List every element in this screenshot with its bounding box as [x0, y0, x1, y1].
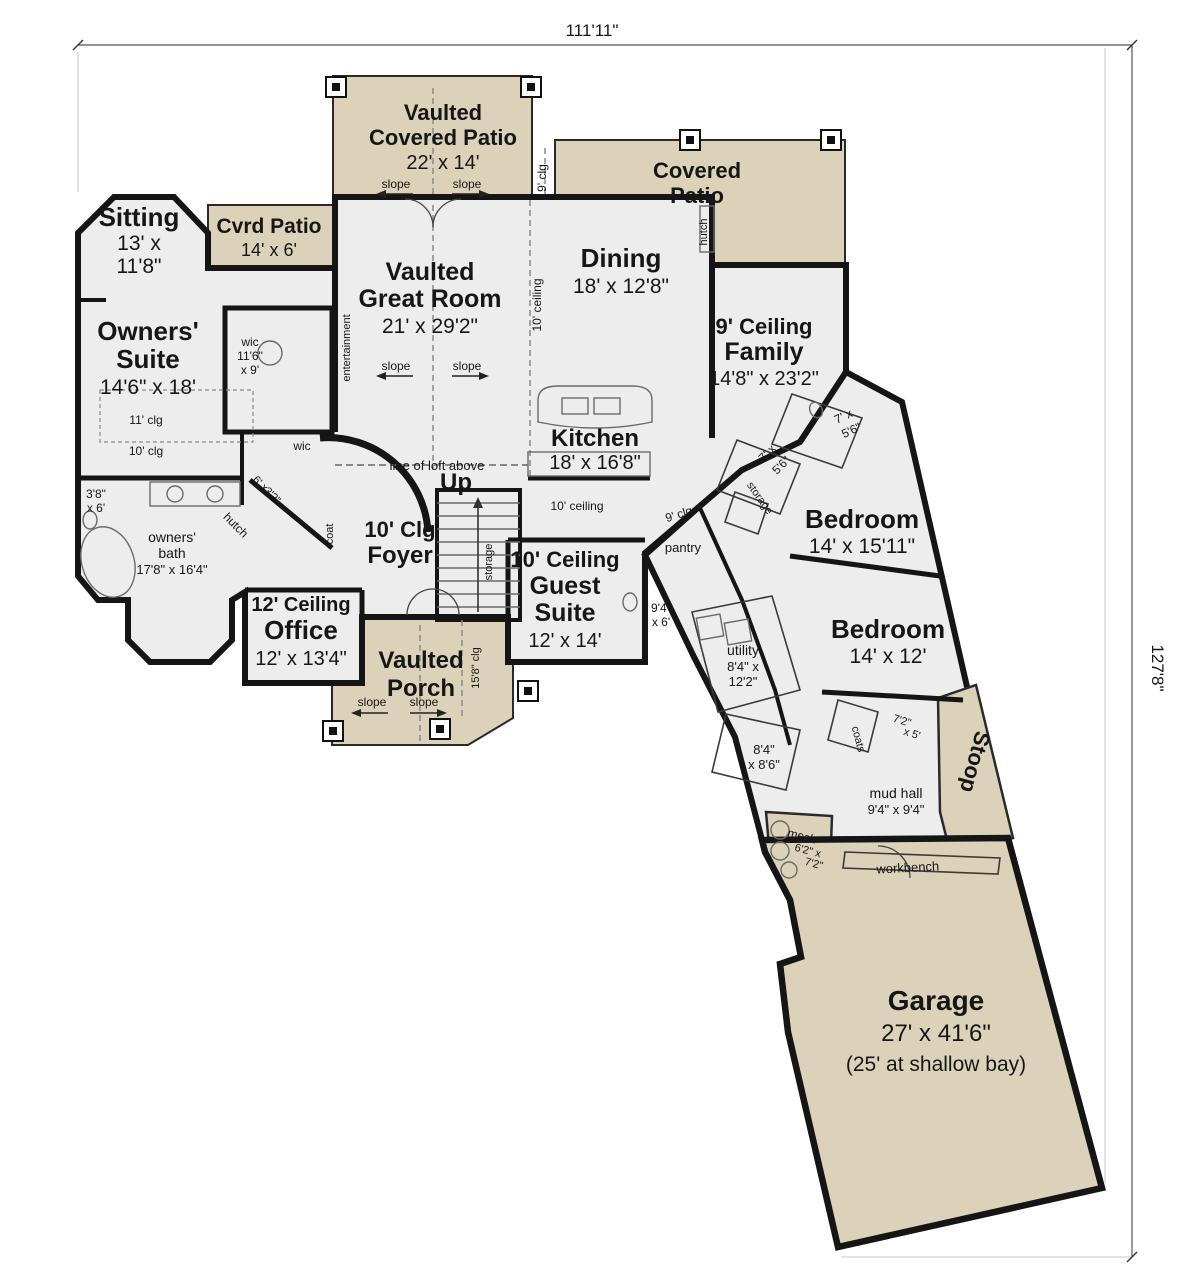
label-slope: slope [453, 359, 482, 373]
label-sitting-dims1: 13' x [117, 232, 161, 255]
label-pantry: pantry [665, 540, 702, 555]
label-wic-name: wic [240, 335, 258, 349]
label-bedroom2-dims: 14' x 12' [850, 645, 927, 668]
label-vaulted-patio-2: Covered Patio [369, 125, 517, 150]
label-dining: Dining [581, 243, 662, 273]
label-up: Up [440, 469, 472, 496]
post [326, 77, 346, 97]
label-office-dims: 12' x 13'4" [255, 648, 346, 670]
post [518, 681, 538, 701]
label-family-dims: 14'8" x 23'2" [709, 368, 819, 390]
label-foyer-ceiling: 10' Clg [364, 517, 435, 542]
label-great-room-dims: 21' x 29'2" [382, 315, 478, 338]
label-utility: utility [727, 642, 759, 658]
label-covered-patio-2: Patio [670, 183, 724, 208]
label-dining-dims: 18' x 12'8" [573, 275, 669, 298]
label-family: Family [724, 338, 803, 366]
label-cvrd-patio-dims: 14' x 6' [241, 240, 297, 260]
label-great-room-2: Great Room [358, 285, 501, 313]
label-slope: slope [382, 177, 411, 191]
post [521, 77, 541, 97]
overall-depth-dimension: 127'8" [1148, 644, 1167, 691]
label-garage-dims: 27' x 41'6" [881, 1020, 991, 1047]
label-storage-stairs: storage [483, 544, 495, 581]
label-owners-bath-2: bath [158, 545, 185, 561]
label-sitting-dims2: 11'8" [117, 255, 162, 278]
label-great-room-1: Vaulted [386, 258, 475, 286]
label-owners-bath-dims: 17'8" x 16'4" [136, 562, 208, 577]
label-guest-1: Guest [530, 572, 602, 600]
label-vaulted-patio-1: Vaulted [404, 100, 482, 125]
label-guest-dims: 12' x 14' [528, 630, 601, 652]
post [821, 130, 841, 150]
label-bath84-1: 8'4" [753, 742, 775, 757]
label-covered-patio-1: Covered [653, 158, 741, 183]
label-garage-note: (25' at shallow bay) [846, 1053, 1026, 1076]
label-bath38-2: x 6' [87, 501, 105, 515]
label-cvrd-patio: Cvrd Patio [216, 215, 321, 238]
label-10ceiling-vert: 10' ceiling [530, 279, 544, 332]
label-garage: Garage [888, 985, 985, 1016]
label-slope: slope [410, 695, 439, 709]
post [680, 130, 700, 150]
label-guest-2: Suite [534, 599, 595, 627]
label-coat: coat [324, 524, 336, 545]
label-owners-bath-1: owners' [148, 529, 196, 545]
label-10-clg: 10' clg [129, 444, 163, 458]
label-utility-dims1: 8'4" x [727, 659, 759, 674]
label-family-ceiling: 9' Ceiling [716, 314, 813, 339]
label-bedroom1-dims: 14' x 15'11" [809, 535, 915, 558]
label-sitting: Sitting [99, 202, 180, 232]
label-vaulted-patio-dims: 22' x 14' [406, 152, 479, 174]
label-bath38-1: 3'8" [86, 487, 106, 501]
label-10ceiling-horiz: 10' ceiling [551, 499, 604, 513]
label-bath84-2: x 8'6" [748, 757, 780, 772]
label-hutch-dining: hutch [698, 219, 710, 246]
label-guest-ceiling: 10' Ceiling [510, 547, 619, 572]
label-wic-dims-1: 11'6" [237, 349, 263, 363]
label-owners-suite-2: Suite [116, 344, 180, 374]
label-mud-hall-dims: 9'4" x 9'4" [868, 802, 925, 817]
label-foyer: Foyer [367, 542, 432, 569]
label-owners-suite-dims: 14'6" x 18' [100, 376, 196, 399]
label-wic-2: wic [292, 439, 310, 453]
label-office: Office [264, 615, 338, 645]
label-bedroom2: Bedroom [831, 614, 945, 644]
label-slope: slope [453, 177, 482, 191]
post [430, 719, 450, 739]
label-kitchen: Kitchen [551, 425, 639, 452]
label-bath94-2: x 6' [652, 615, 670, 629]
label-9clg-patio: 9' clg [535, 164, 549, 192]
label-slope: slope [358, 695, 387, 709]
label-entertainment: entertainment [341, 314, 353, 381]
label-owners-suite-1: Owners' [97, 316, 199, 346]
label-utility-dims2: 12'2" [729, 674, 758, 689]
overall-width-dimension: 111'11" [566, 21, 619, 40]
label-mud-hall: mud hall [870, 785, 923, 801]
label-bath94-1: 9'4" [651, 601, 671, 615]
post [323, 721, 343, 741]
floor-plan-page: 111'11" 127'8" [0, 0, 1200, 1270]
label-bedroom1: Bedroom [805, 504, 919, 534]
label-15-8-clg: 15'8" clg [470, 647, 482, 688]
label-office-ceiling: 12' Ceiling [251, 594, 350, 616]
label-wic-dims-2: x 9' [241, 363, 259, 377]
label-11-clg: 11' clg [129, 413, 162, 427]
label-porch-1: Vaulted [378, 647, 463, 674]
floor-plan-drawing: 111'11" 127'8" [0, 0, 1200, 1270]
label-kitchen-dims: 18' x 16'8" [549, 452, 640, 474]
label-slope: slope [382, 359, 411, 373]
